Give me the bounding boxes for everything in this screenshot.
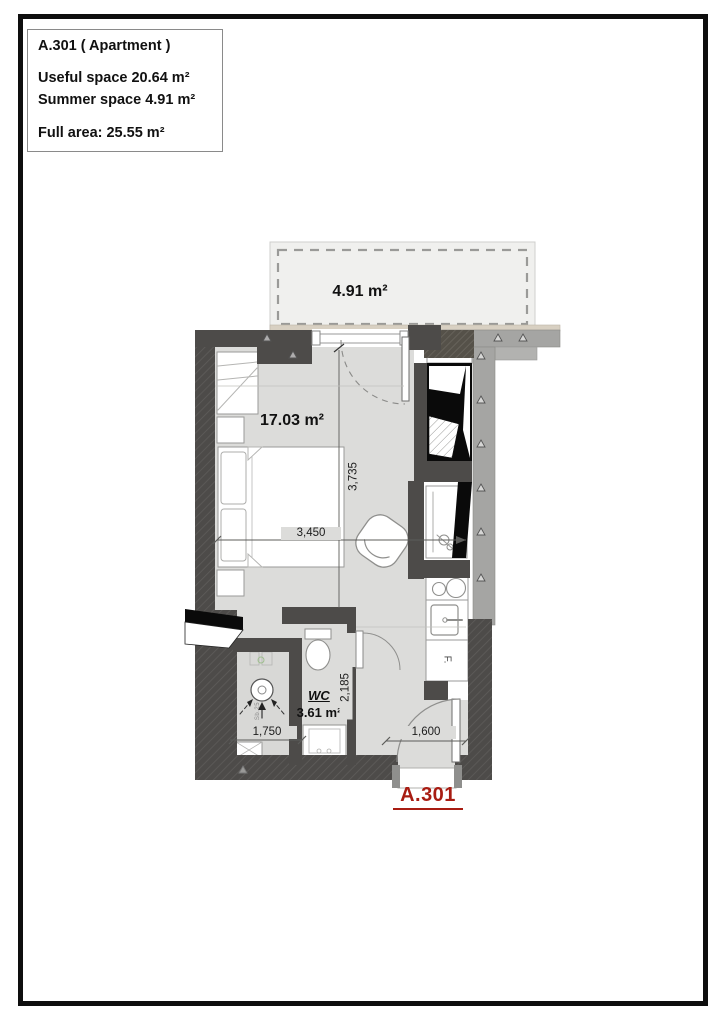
terrace-area-label: 4.91 m² bbox=[310, 283, 410, 301]
dim-entry-width: 1,600 bbox=[396, 726, 456, 739]
fridge-label: F. bbox=[442, 650, 453, 670]
shower-tray bbox=[303, 725, 346, 757]
room-area-label: 17.03 m² bbox=[240, 412, 344, 430]
dim-wc-depth: 2,185 bbox=[340, 656, 353, 720]
floor-plan-drawing bbox=[0, 0, 724, 1024]
shaft-label: Sb.25 bbox=[255, 691, 261, 731]
door-leaf bbox=[356, 631, 363, 668]
floor-plan-page: A.301 ( Apartment ) Useful space 20.64 m… bbox=[0, 0, 724, 1024]
apartment-number-label: A.301 bbox=[393, 784, 463, 810]
toilet bbox=[305, 629, 331, 670]
dim-room-width: 3,450 bbox=[281, 527, 341, 540]
door-leaf bbox=[402, 337, 409, 401]
wardrobe bbox=[217, 352, 258, 414]
dim-room-depth: 3,735 bbox=[348, 445, 361, 509]
bed bbox=[218, 447, 344, 567]
nightstand bbox=[217, 570, 244, 596]
wc-label: WC bbox=[299, 688, 339, 703]
dim-shaft-width: 1,750 bbox=[237, 726, 297, 739]
